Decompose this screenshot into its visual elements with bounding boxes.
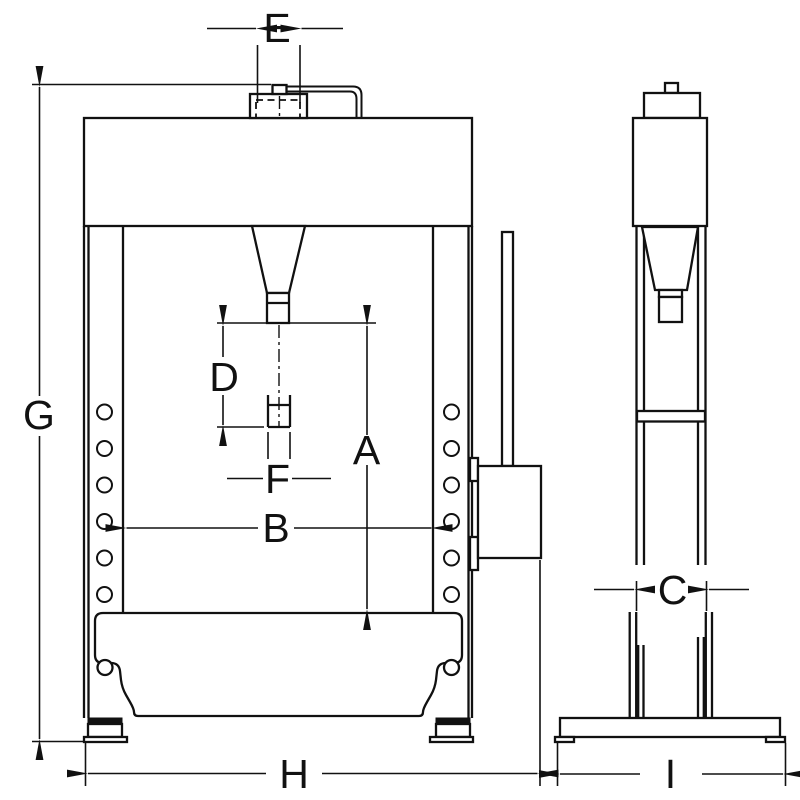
dimension-f: F: [227, 432, 331, 502]
dim-label-c: C: [658, 567, 688, 613]
side-table-bar: [637, 411, 705, 422]
dim-label-f: F: [265, 456, 290, 502]
table-pin-left: [98, 660, 113, 675]
cylinder-knob: [273, 85, 287, 94]
cylinder-top: [250, 85, 362, 118]
side-base: [555, 718, 785, 742]
dim-label-i: I: [665, 751, 676, 797]
cylinder-cap-block: [250, 94, 307, 118]
pump-assembly: [470, 232, 541, 570]
dim-label-d: D: [209, 354, 239, 400]
side-lower-plates: [630, 612, 712, 718]
dimension-d: D: [209, 326, 264, 427]
dim-label-g: G: [23, 392, 55, 438]
pump-body: [478, 466, 541, 558]
front-view: [84, 85, 541, 742]
table-pin-right: [444, 660, 459, 675]
side-view: [555, 83, 785, 742]
cylinder-cone: [252, 226, 305, 293]
side-cylinder-body: [633, 118, 707, 226]
dim-label-h: H: [279, 751, 309, 797]
side-ram-tip: [659, 297, 682, 322]
side-cylinder-cap: [644, 93, 700, 118]
dim-label-e: E: [263, 5, 290, 51]
press-dimension-diagram: E G D F: [0, 0, 800, 800]
side-cylinder-ram: [642, 227, 698, 322]
ram-tip: [267, 293, 289, 323]
press-head: [84, 118, 472, 226]
cylinder-ram: [252, 226, 305, 323]
right-foot: [430, 718, 473, 742]
pump-bracket-top: [470, 458, 478, 481]
dimension-i: I: [558, 743, 786, 797]
dim-label-a: A: [353, 427, 381, 473]
dimension-a: A: [353, 326, 381, 609]
diagram-canvas: E G D F: [0, 0, 800, 800]
column-holes: [97, 405, 459, 603]
side-cylinder-cone: [642, 227, 698, 290]
left-foot: [84, 718, 127, 742]
dimension-b: B: [127, 505, 432, 551]
side-cylinder-knob: [665, 83, 678, 93]
pump-handle-rod: [502, 232, 513, 466]
work-table: [95, 613, 462, 716]
pump-bracket-bottom: [470, 537, 478, 570]
dim-label-b: B: [262, 505, 289, 551]
dimension-c: C: [594, 567, 749, 613]
side-cylinder: [633, 83, 707, 226]
